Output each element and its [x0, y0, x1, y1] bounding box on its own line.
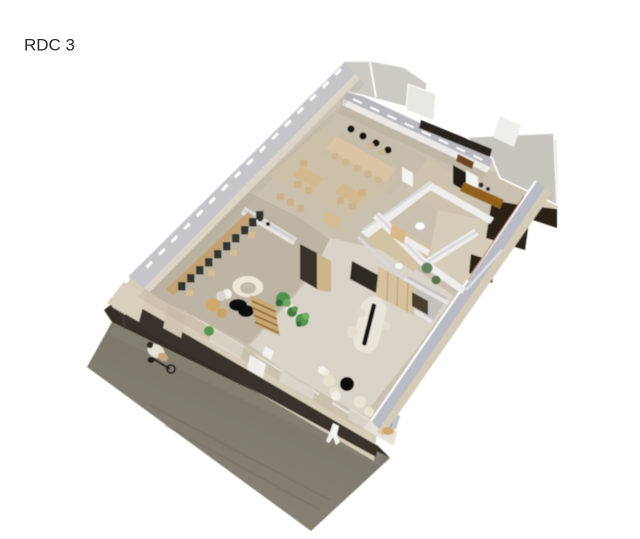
svg-text:RDC 3: RDC 3 [24, 36, 75, 55]
